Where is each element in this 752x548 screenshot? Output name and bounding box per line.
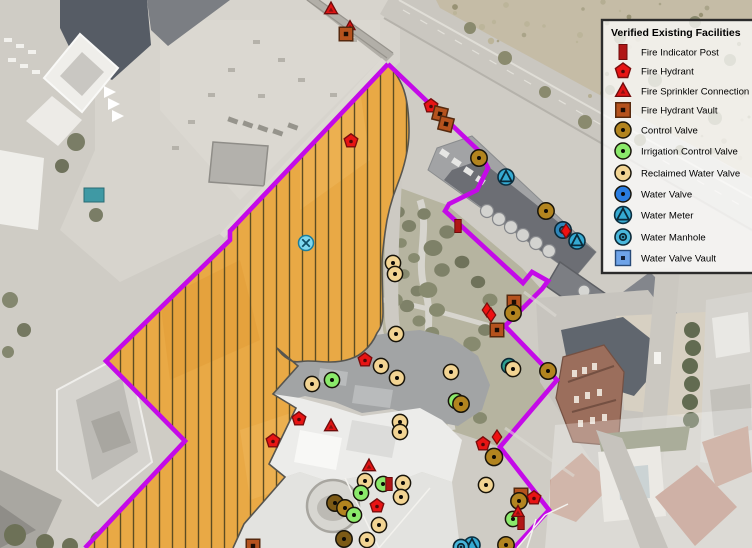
svg-text:Irrigation Control Valve: Irrigation Control Valve: [641, 147, 738, 158]
svg-text:Fire Sprinkler Connection: Fire Sprinkler Connection: [641, 87, 749, 98]
svg-text:Control Valve: Control Valve: [641, 126, 698, 137]
svg-text:Water Meter: Water Meter: [641, 211, 694, 222]
svg-text:Fire Hydrant: Fire Hydrant: [641, 67, 694, 78]
svg-text:Fire Hydrant Vault: Fire Hydrant Vault: [641, 106, 718, 117]
svg-text:Water Valve Vault: Water Valve Vault: [641, 254, 716, 265]
svg-text:Verified Existing Facilities: Verified Existing Facilities: [611, 27, 741, 39]
svg-text:Reclaimed Water Valve: Reclaimed Water Valve: [641, 169, 740, 180]
svg-text:Water Manhole: Water Manhole: [641, 233, 706, 244]
svg-text:Fire Indicator Post: Fire Indicator Post: [641, 48, 719, 59]
svg-text:Water Valve: Water Valve: [641, 190, 692, 201]
